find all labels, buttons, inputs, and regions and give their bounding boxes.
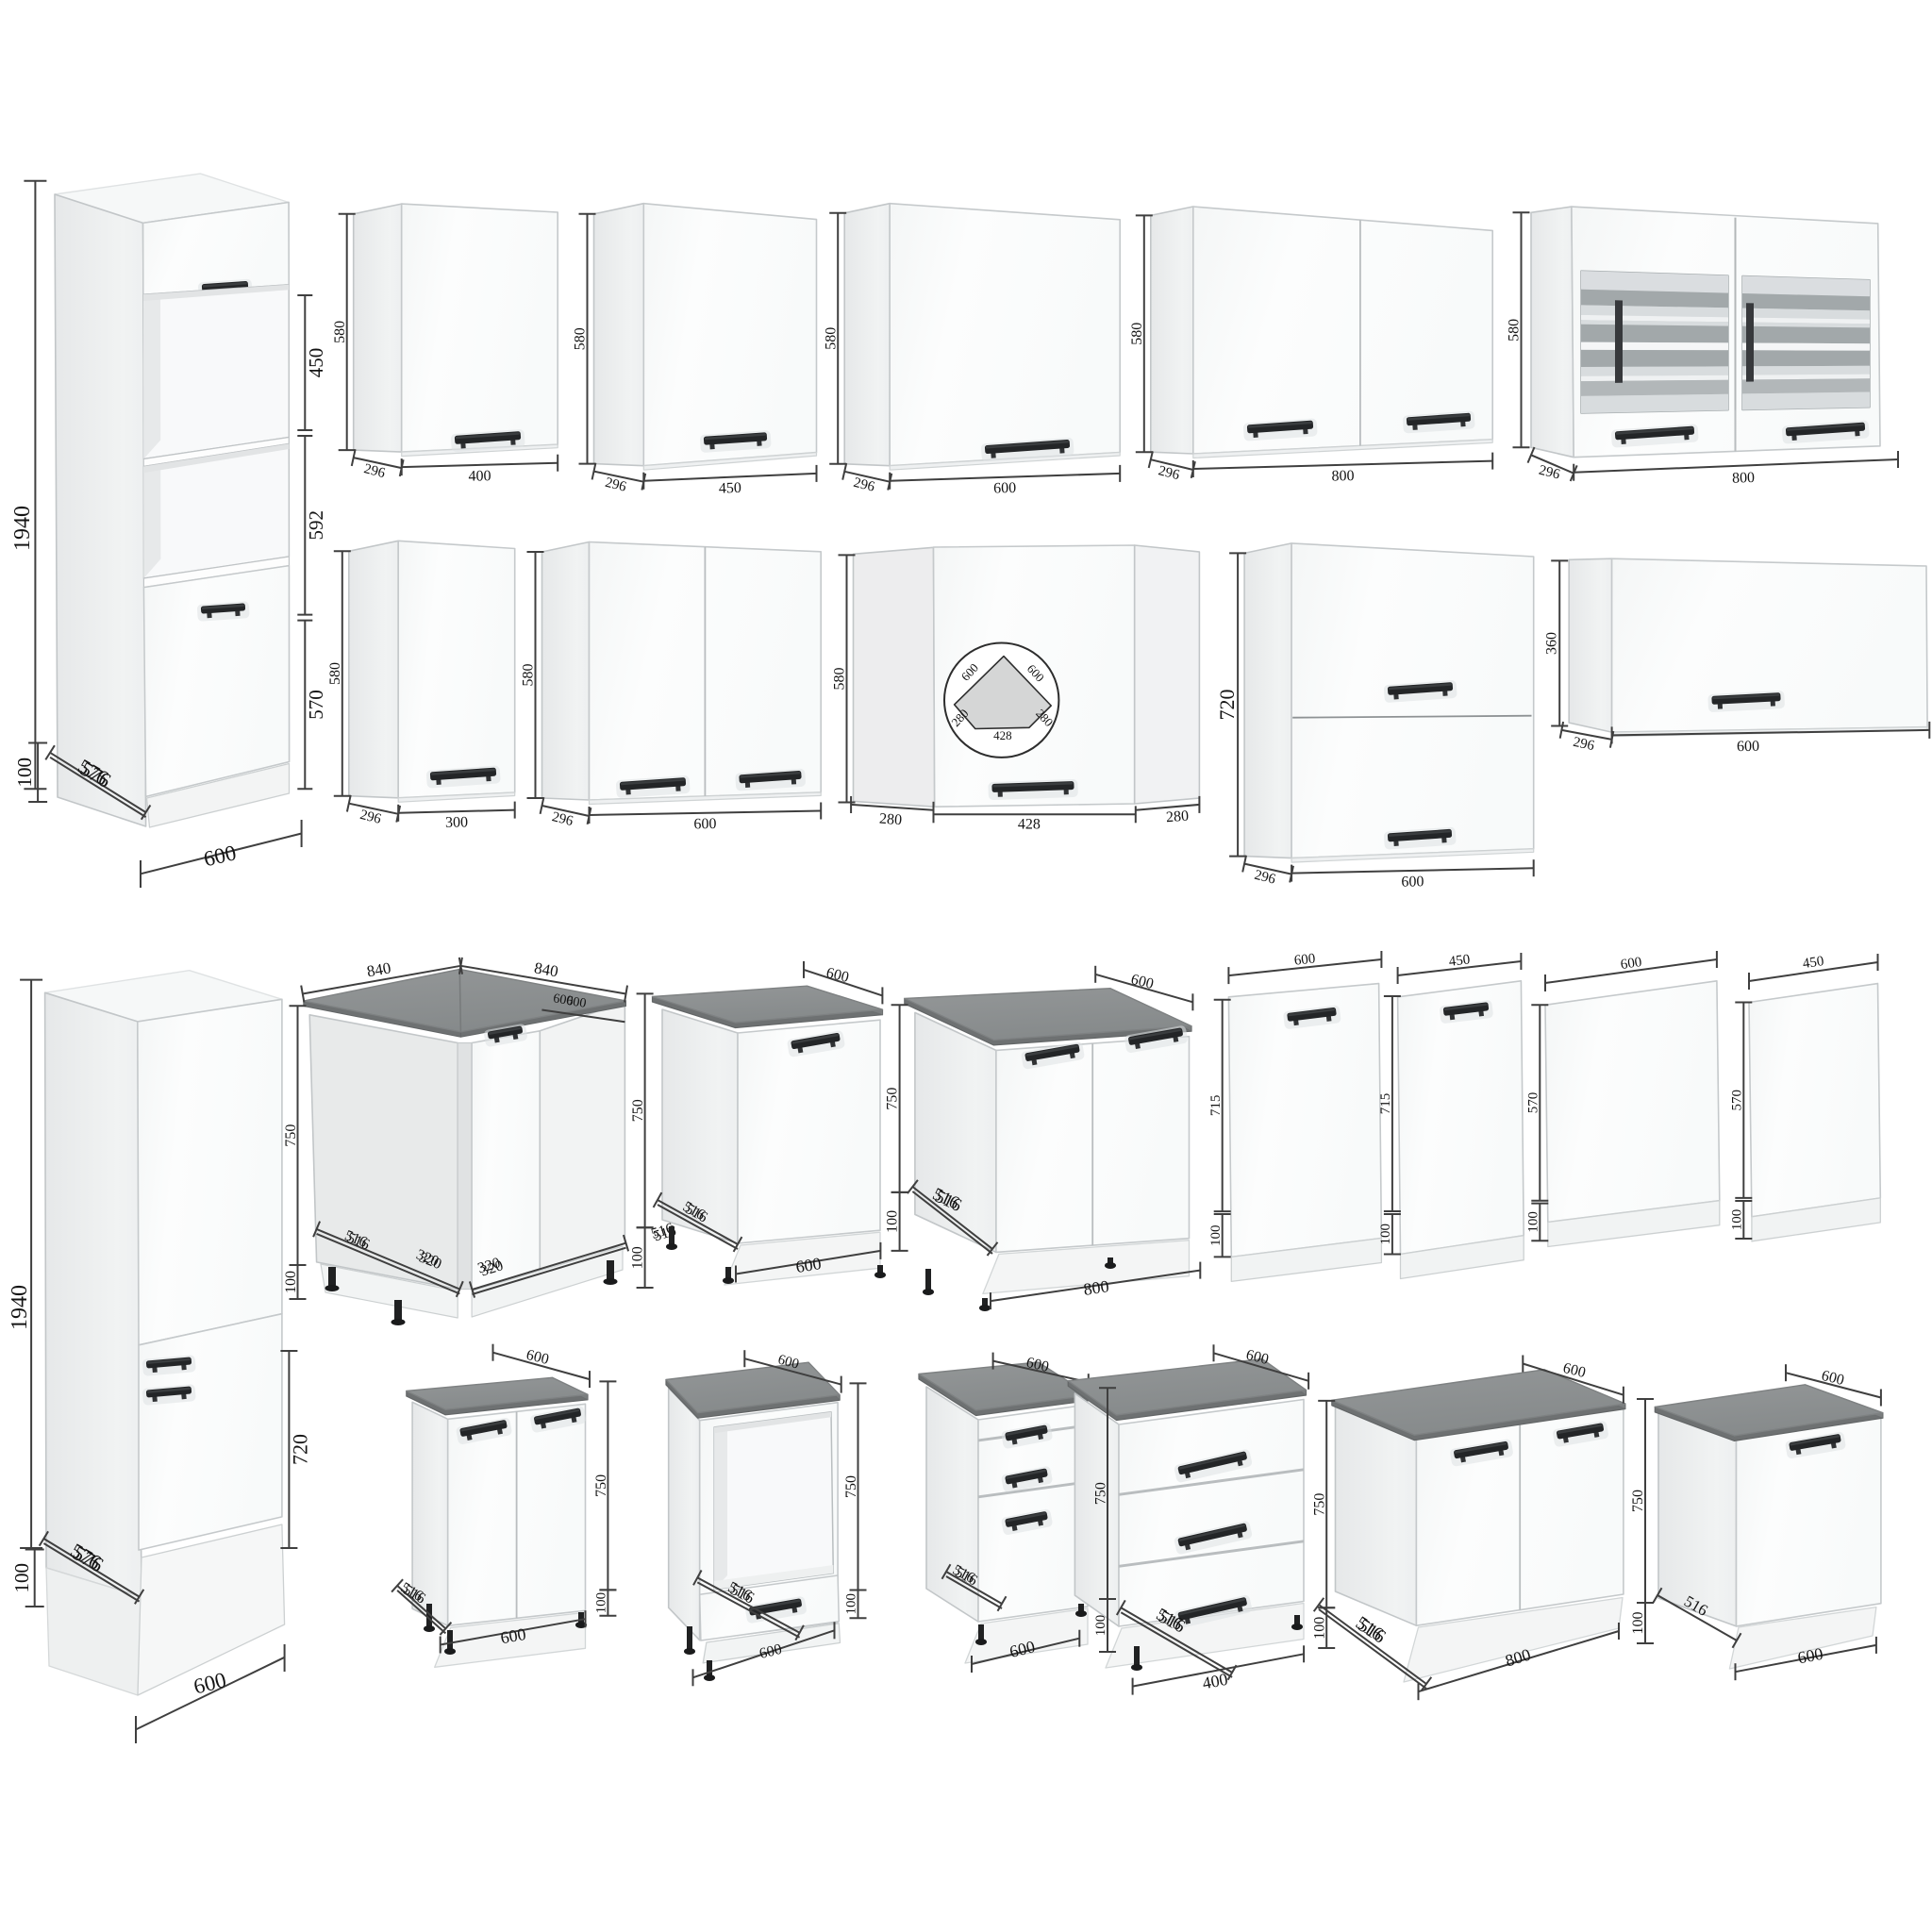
svg-text:800: 800 — [1082, 1276, 1110, 1299]
svg-text:100: 100 — [885, 1210, 901, 1233]
svg-text:750: 750 — [843, 1475, 859, 1498]
svg-text:400: 400 — [468, 468, 491, 484]
svg-text:100: 100 — [594, 1592, 609, 1614]
svg-text:100: 100 — [283, 1271, 299, 1293]
svg-text:580: 580 — [832, 668, 848, 691]
svg-text:750: 750 — [593, 1474, 609, 1497]
svg-text:100: 100 — [1526, 1211, 1541, 1233]
svg-text:750: 750 — [885, 1088, 901, 1110]
svg-text:1940: 1940 — [8, 1285, 32, 1330]
svg-text:580: 580 — [1507, 319, 1523, 341]
svg-text:750: 750 — [1092, 1482, 1108, 1505]
svg-text:100: 100 — [630, 1246, 646, 1269]
svg-text:715: 715 — [1378, 1093, 1393, 1115]
svg-text:715: 715 — [1208, 1095, 1224, 1117]
svg-text:280: 280 — [1165, 808, 1189, 826]
svg-text:450: 450 — [1448, 952, 1471, 969]
svg-text:100: 100 — [1378, 1224, 1393, 1245]
svg-text:100: 100 — [13, 758, 36, 788]
svg-text:1940: 1940 — [10, 506, 35, 551]
svg-text:720: 720 — [1215, 690, 1239, 721]
svg-text:580: 580 — [521, 664, 537, 687]
svg-text:750: 750 — [1630, 1490, 1646, 1512]
svg-text:570: 570 — [305, 690, 327, 720]
svg-text:580: 580 — [332, 321, 348, 343]
svg-text:800: 800 — [1732, 470, 1756, 487]
svg-text:570: 570 — [1526, 1092, 1541, 1114]
svg-text:750: 750 — [630, 1099, 646, 1122]
svg-text:450: 450 — [305, 348, 327, 378]
svg-text:580: 580 — [573, 327, 589, 350]
svg-text:428: 428 — [993, 728, 1012, 742]
svg-text:100: 100 — [1630, 1612, 1646, 1635]
svg-text:100: 100 — [1093, 1615, 1108, 1637]
svg-text:800: 800 — [1331, 468, 1354, 484]
svg-text:600: 600 — [693, 816, 716, 832]
svg-text:280: 280 — [878, 811, 902, 829]
svg-text:600: 600 — [1293, 951, 1316, 968]
svg-text:720: 720 — [289, 1434, 312, 1465]
svg-text:300: 300 — [445, 814, 468, 830]
svg-text:600: 600 — [993, 480, 1016, 497]
svg-text:570: 570 — [1730, 1090, 1745, 1111]
svg-text:100: 100 — [1208, 1224, 1224, 1246]
svg-text:600: 600 — [794, 1254, 823, 1276]
svg-text:580: 580 — [327, 662, 343, 685]
svg-text:750: 750 — [283, 1124, 299, 1147]
svg-text:600: 600 — [1401, 874, 1424, 890]
svg-text:100: 100 — [1730, 1209, 1745, 1231]
svg-text:592: 592 — [305, 510, 327, 541]
svg-text:600: 600 — [1620, 955, 1642, 973]
svg-text:100: 100 — [844, 1593, 859, 1615]
svg-text:100: 100 — [1311, 1617, 1327, 1640]
svg-text:360: 360 — [1543, 632, 1559, 655]
svg-text:750: 750 — [1311, 1493, 1327, 1516]
svg-text:580: 580 — [1129, 323, 1145, 345]
svg-text:580: 580 — [823, 327, 839, 350]
svg-text:100: 100 — [10, 1563, 33, 1593]
svg-text:450: 450 — [719, 480, 741, 497]
svg-text:450: 450 — [1802, 954, 1825, 972]
svg-text:600: 600 — [1737, 739, 1759, 755]
svg-text:428: 428 — [1018, 816, 1041, 832]
